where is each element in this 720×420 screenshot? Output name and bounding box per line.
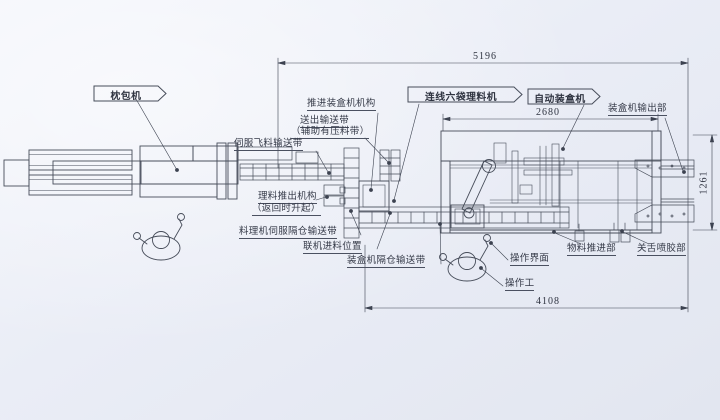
label-tongue-glue-section: 关舌喷胶部: [637, 244, 686, 256]
cartoner-output-section: [635, 160, 694, 222]
label-material-pusher-section: 物料推进部: [567, 244, 616, 256]
dimension-cartoner-length: 2680: [528, 107, 568, 118]
label-inline-feed-position: 联机进料位置: [303, 242, 362, 254]
label-servo-compartment-belt: 料理机伺服隔仓输送带: [239, 227, 337, 239]
label-cartoner-output-section: 装盒机输出部: [608, 104, 667, 116]
label-pushout-mechanism-line2: （返回时升起）: [252, 204, 321, 216]
operator-bottom-figure: [440, 235, 491, 282]
cartoner-machine: [441, 131, 661, 242]
dimension-working-length: 4108: [528, 296, 568, 307]
label-operator: 操作工: [505, 279, 534, 291]
label-operation-interface: 操作界面: [510, 254, 549, 266]
label-cartoner-compartment-belt: 装盒机隔仓输送带: [347, 256, 425, 268]
operator-left-figure: [134, 214, 185, 261]
dimension-overall-length: 5196: [460, 51, 510, 62]
flag-auto-cartoner: 自动装盒机: [528, 91, 592, 105]
engineering-drawing: 枕包机 连线六袋理料机 自动装盒机 推进装盒机机构 送出输送带 （辅助有压料带）…: [0, 0, 720, 420]
drawing-linework: [0, 0, 720, 420]
outfeed-belt: [380, 150, 400, 181]
label-push-into-cartoner-mechanism: 推进装盒机机构: [307, 99, 376, 111]
flag-pillow-packer: 枕包机: [94, 88, 158, 102]
transfer-box: [359, 181, 389, 211]
flag-inline-six-bag-machine: 连线六袋理料机: [408, 89, 514, 103]
dimension-machine-height: 1261: [699, 163, 710, 203]
label-servo-fly-feed-belt: 伺服飞料输送带: [234, 139, 303, 151]
